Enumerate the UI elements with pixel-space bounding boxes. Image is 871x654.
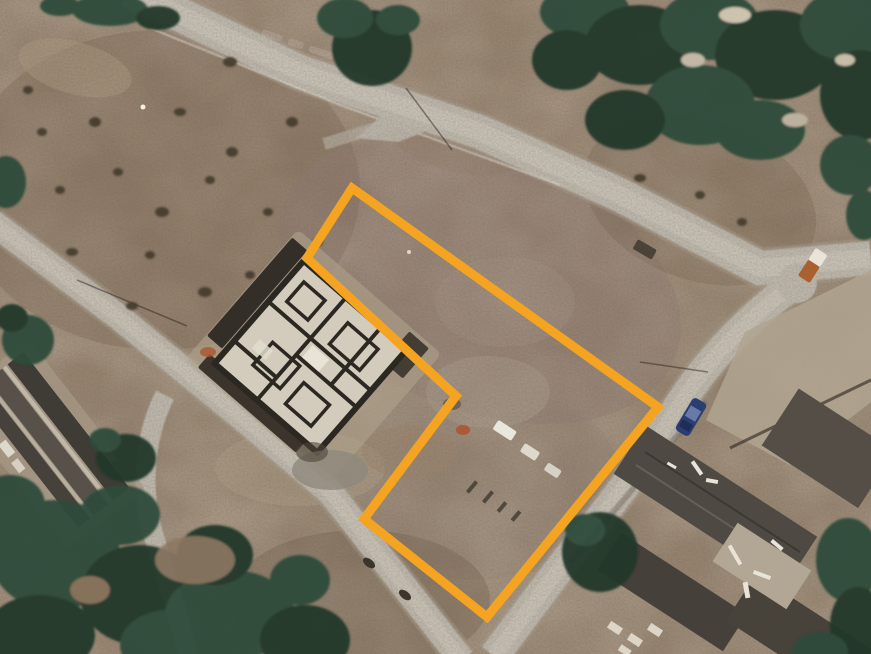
tree-over-right-road <box>562 512 638 592</box>
satellite-map-canvas[interactable] <box>0 0 871 654</box>
rust-spot <box>200 347 216 357</box>
rust-spot <box>456 425 470 435</box>
mound-shadow <box>296 442 328 462</box>
